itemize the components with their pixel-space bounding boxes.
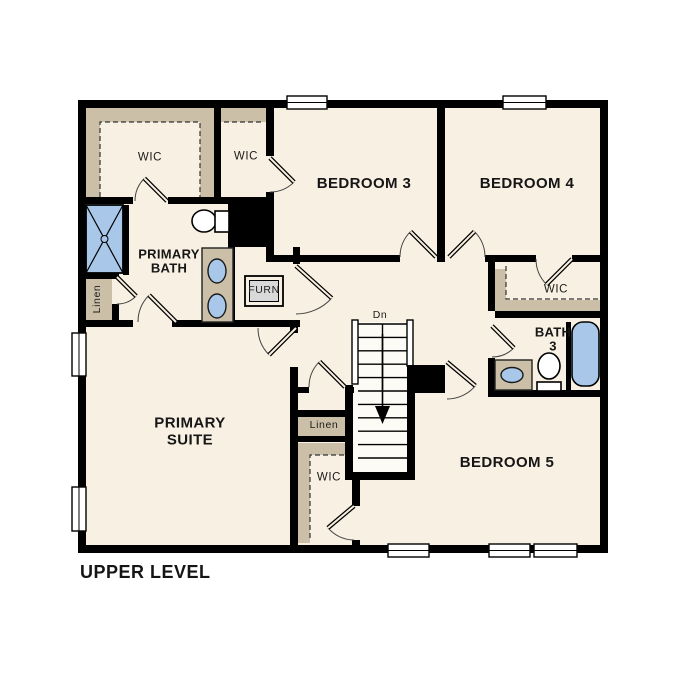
room-label-wic-bed4: WIC [544,284,568,297]
sink [208,259,226,283]
wall [214,108,221,197]
wall [488,262,495,311]
wall [345,472,415,480]
room-label-bedroom3: BEDROOM 3 [317,176,411,193]
toilet-bowl [538,353,560,379]
stair-stringer [352,320,358,384]
room-label-wic-hall: WIC [317,472,341,485]
room-label-bath3: BATH 3 [535,326,571,355]
room-label-linen-hall: Linen [310,420,339,432]
wall [572,255,608,262]
toilet-tank [215,211,229,232]
wall [168,197,214,204]
wall [266,255,400,262]
room-label-primary-wic: WIC [138,152,162,165]
wall [485,255,536,262]
wall [352,480,360,506]
closet-shelf-band [221,108,266,122]
wall [297,387,309,393]
wall [266,108,274,156]
closet-shelf-band [297,443,310,543]
wall [600,100,608,553]
room-label-primary-bath: PRIMARY BATH [138,248,200,277]
toilet-bowl [192,210,216,232]
floor-plan: WIC WIC BEDROOM 3 BEDROOM 4 PRIMARY BATH… [0,0,687,687]
floor-plan-drawing [0,0,687,687]
room-label-bedroom4: BEDROOM 4 [480,176,574,193]
room-label-furnace: FURN [248,285,280,297]
wall [495,311,600,318]
toilet-tank [537,382,561,391]
room-label-bedroom5: BEDROOM 5 [460,455,554,472]
closet-shelf-band [200,108,214,197]
wall [290,436,352,442]
sink [208,294,226,318]
wall [290,410,352,417]
wall [112,304,119,322]
wall [488,358,495,397]
wall [86,320,133,327]
wall [123,205,129,275]
closet-shelf-band [495,300,600,311]
bathtub [572,322,599,386]
wall [352,540,360,545]
shower-drain [101,236,108,243]
plan-title: UPPER LEVEL [80,562,211,583]
sink [501,368,523,383]
room-label-wic-bed3: WIC [234,151,258,164]
wall [293,247,300,264]
room-label-linen-left: Linen [92,285,104,314]
stairs-direction-label: Dn [373,310,388,322]
closet-shelf-band [86,108,100,197]
stair-stringer [407,320,413,366]
wall [290,367,298,545]
wall [86,197,133,204]
wall [345,385,353,475]
wall [437,108,445,262]
chase [407,365,445,393]
floor [86,108,600,545]
chase [228,202,273,247]
room-label-primary-suite: PRIMARY SUITE [154,416,225,449]
closet-shelf-band [86,108,214,122]
wall [78,100,86,553]
